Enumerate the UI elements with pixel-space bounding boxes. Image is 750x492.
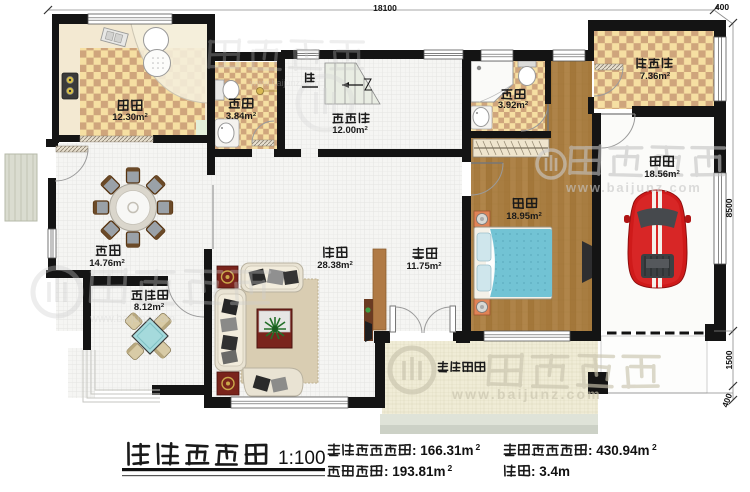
svg-text:12.30m2: 12.30m2 — [112, 112, 148, 123]
svg-text:1500: 1500 — [724, 350, 734, 369]
svg-text:: 193.81m: : 193.81m — [384, 464, 446, 479]
svg-text:28.38m2: 28.38m2 — [317, 260, 353, 271]
svg-text:www.baijunz.com: www.baijunz.com — [89, 313, 175, 325]
svg-text:2: 2 — [448, 463, 453, 473]
svg-text:11.75m2: 11.75m2 — [407, 261, 443, 272]
svg-text:3.92m2: 3.92m2 — [498, 100, 529, 111]
svg-text:: 3.4m: : 3.4m — [531, 464, 570, 479]
svg-text:2: 2 — [476, 442, 481, 452]
svg-text:18.95m2: 18.95m2 — [506, 211, 542, 222]
svg-text:: 430.94m: : 430.94m — [588, 443, 650, 458]
svg-text:8500: 8500 — [724, 198, 734, 217]
svg-text:1:100: 1:100 — [278, 448, 326, 469]
svg-text:www.baijunz.com: www.baijunz.com — [451, 386, 602, 402]
svg-text:8.12m2: 8.12m2 — [134, 302, 165, 313]
svg-text:: 166.31m: : 166.31m — [412, 443, 474, 458]
svg-text:400: 400 — [715, 2, 729, 12]
svg-text:12.00m2: 12.00m2 — [332, 125, 368, 136]
svg-text:18.56m2: 18.56m2 — [644, 169, 680, 180]
svg-text:3.84m2: 3.84m2 — [226, 111, 257, 122]
svg-text:7.36m2: 7.36m2 — [640, 71, 671, 82]
svg-text:14.76m2: 14.76m2 — [89, 258, 125, 269]
svg-text:2: 2 — [652, 442, 657, 452]
svg-text:www.baijunz.com: www.baijunz.com — [565, 180, 702, 195]
svg-text:18100: 18100 — [373, 3, 397, 13]
